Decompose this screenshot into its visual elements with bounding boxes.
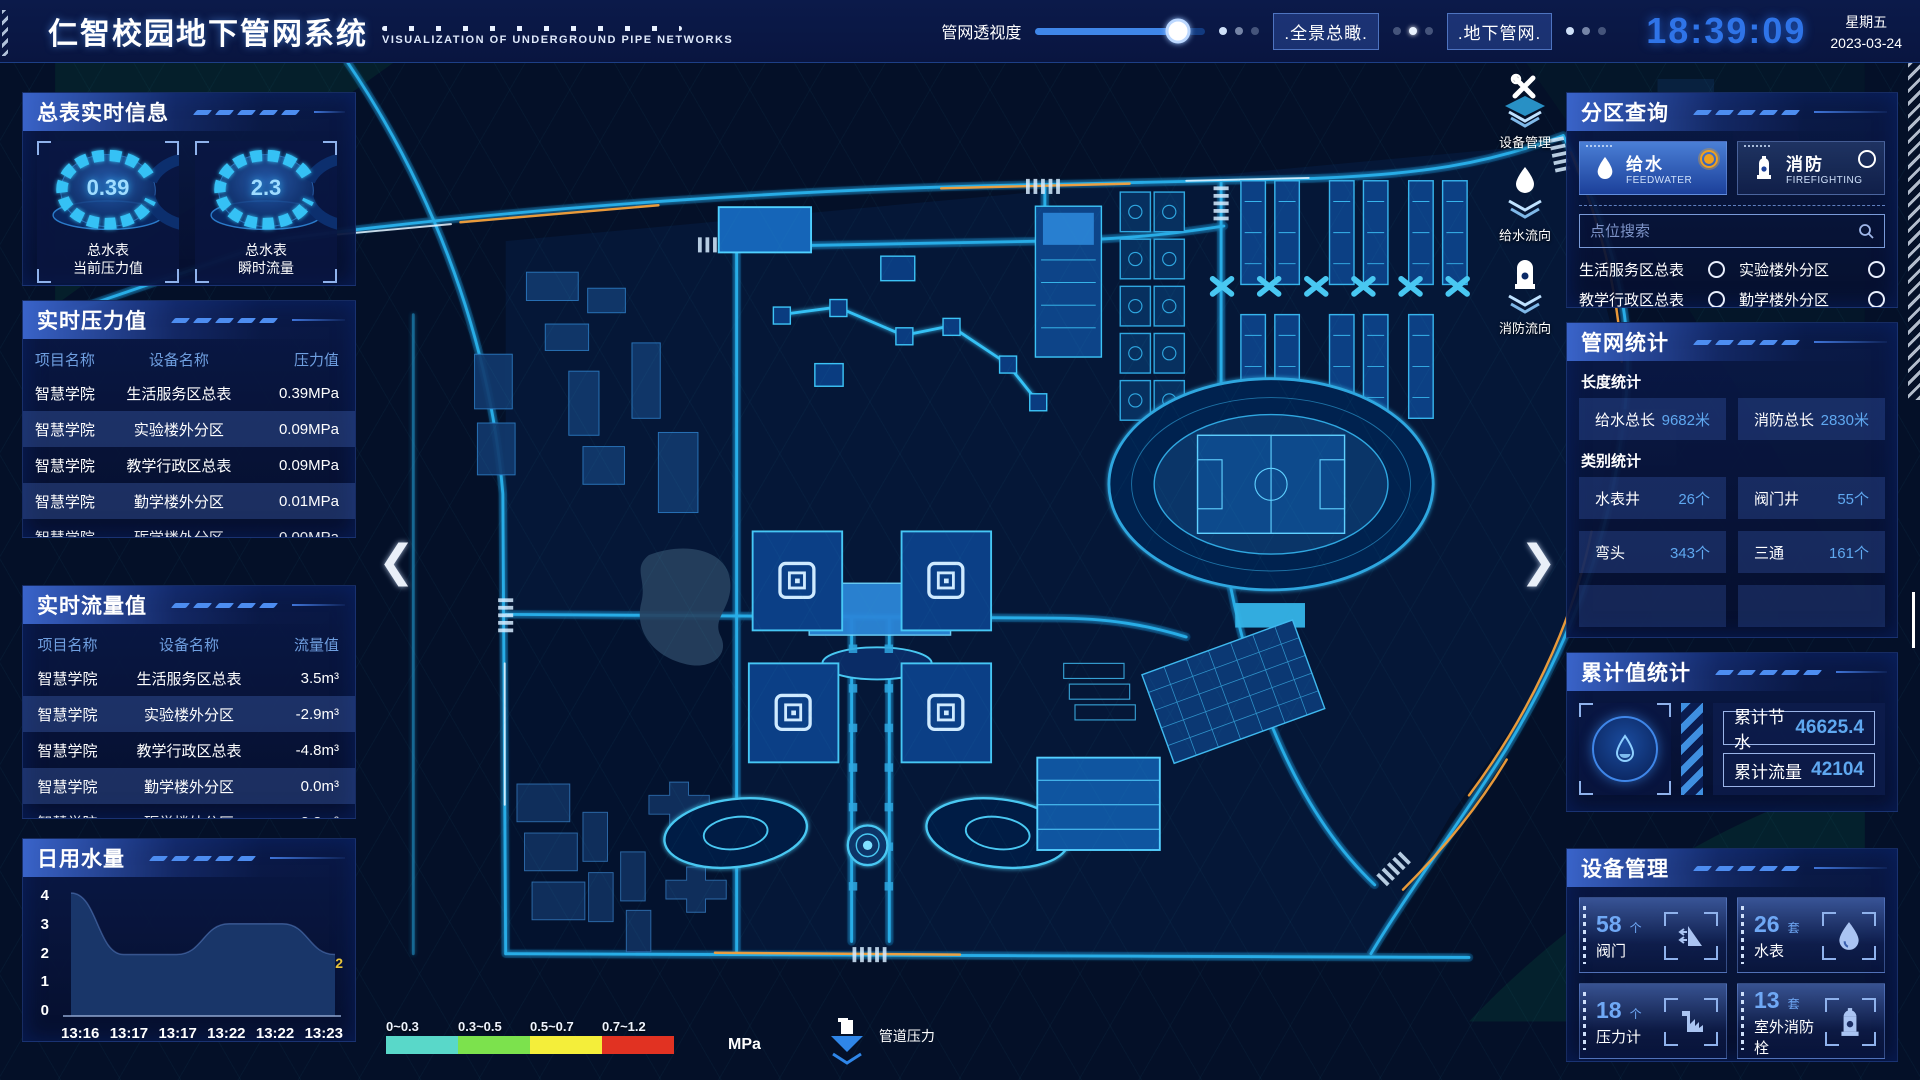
- stat-meter-wells: 水表井26个: [1579, 477, 1726, 519]
- x-tick: 13:17: [110, 1025, 148, 1042]
- tool-label: 消防流向: [1499, 318, 1551, 337]
- x-tick: 13:23: [305, 1025, 343, 1042]
- title-dots-decoration: [382, 26, 682, 31]
- fire-hydrant-icon: [1837, 1007, 1863, 1037]
- firefighting-label: 消防: [1786, 150, 1863, 175]
- header-edge-decoration: [2, 10, 8, 56]
- panel-title: 设备管理: [1567, 853, 1669, 883]
- y-tick: 0: [33, 1002, 49, 1019]
- device-card-hydrants[interactable]: 13套 室外消防栓: [1737, 983, 1885, 1059]
- col-header: 项目名称: [23, 628, 112, 660]
- app-subtitle: VISUALIZATION OF UNDERGROUND PIPE NETWOR…: [382, 34, 733, 46]
- panel-daily-water: 日用水量 4 3 2 1 0 2 13:16 13:17 13:17 13:22…: [22, 838, 356, 1042]
- panel-title: 日用水量: [23, 843, 125, 873]
- table-row: 智慧学院生活服务区总表0.39MPa: [23, 375, 355, 411]
- col-header: 流量值: [266, 628, 355, 660]
- water-drop-icon: [1613, 734, 1637, 764]
- feedwater-label: 给水: [1626, 150, 1692, 175]
- panel-title: 管网统计: [1567, 327, 1669, 357]
- area-chart-svg: [45, 883, 345, 1023]
- underground-pipes-button[interactable]: .地下管网.: [1447, 13, 1552, 50]
- table-row: 智慧学院砺学楼外分区0.00MPa: [23, 519, 355, 538]
- x-tick: 13:22: [256, 1025, 294, 1042]
- gauge-label-line1: 总水表: [245, 242, 287, 258]
- map-tool-fire-flow[interactable]: 消防流向: [1496, 258, 1554, 337]
- dots-decoration: [1393, 27, 1433, 35]
- zone-item[interactable]: 勤学楼外分区: [1739, 284, 1885, 308]
- search-icon[interactable]: [1858, 223, 1874, 239]
- app-title: 仁智校园地下管网系统: [48, 9, 368, 53]
- panel-meter-realtime: 总表实时信息 0.39 总水表 当前压力值: [22, 92, 356, 286]
- x-tick: 13:16: [61, 1025, 99, 1042]
- table-row: 智慧学院砺学楼外分区2.3m³: [23, 804, 355, 819]
- total-flow: 累计流量42104: [1723, 753, 1875, 787]
- map-next-arrow[interactable]: ❯: [1520, 540, 1557, 584]
- panel-title: 总表实时信息: [23, 97, 169, 127]
- legend-range: 0~0.3: [386, 1019, 458, 1034]
- panel-realtime-flow: 实时流量值 项目名称 设备名称 流量值 智慧学院生活服务区总表3.5m³ 智慧学…: [22, 585, 356, 819]
- tool-label: 给水流向: [1499, 225, 1551, 244]
- radio-ring-icon[interactable]: [1868, 291, 1885, 308]
- panel-title: 实时流量值: [23, 590, 147, 620]
- device-card-valves[interactable]: 58个 阀门: [1579, 897, 1727, 973]
- feedwater-sublabel: FEEDWATER: [1626, 175, 1692, 186]
- slider-fill: [1035, 28, 1178, 35]
- gauge-label-line2: 当前压力值: [73, 260, 143, 276]
- date: 2023-03-24: [1830, 35, 1902, 51]
- legend-unit: MPa: [728, 1036, 761, 1054]
- col-header: 设备名称: [107, 343, 251, 375]
- col-header: 压力值: [251, 343, 355, 375]
- device-card-water-meters[interactable]: 26套 水表: [1737, 897, 1885, 973]
- search-input[interactable]: [1580, 223, 1858, 240]
- table-row: 智慧学院教学行政区总表0.09MPa: [23, 447, 355, 483]
- feedwater-radio[interactable]: [1700, 150, 1718, 168]
- feedwater-toggle[interactable]: 给水 FEEDWATER: [1579, 141, 1727, 195]
- fire-hydrant-icon: [1752, 155, 1776, 181]
- col-header: 项目名称: [23, 343, 107, 375]
- device-card-pressure-gauges[interactable]: 18个 压力计: [1579, 983, 1727, 1059]
- dots-decoration: [1566, 27, 1606, 35]
- table-row: 智慧学院教学行政区总表-4.8m³: [23, 732, 355, 768]
- legend-colorbar: [386, 1036, 674, 1054]
- zone-item[interactable]: 教学行政区总表: [1579, 284, 1725, 308]
- tools-icon: [1499, 72, 1551, 130]
- pipe-pressure-icon: [825, 1016, 869, 1066]
- table-row: 智慧学院实验楼外分区-2.9m³: [23, 696, 355, 732]
- stat-elbows: 弯头343个: [1579, 531, 1726, 573]
- stat-valve-wells: 阀门井55个: [1738, 477, 1885, 519]
- panel-realtime-pressure: 实时压力值 项目名称 设备名称 压力值 智慧学院生活服务区总表0.39MPa 智…: [22, 300, 356, 538]
- stripes-decoration: [1681, 703, 1703, 795]
- map-tool-stack: 设备管理 给水流向 消防流向: [1496, 72, 1554, 337]
- gauge-label-line2: 瞬时流量: [238, 260, 294, 276]
- gauge-pressure: 0.39 总水表 当前压力值: [37, 141, 179, 283]
- stat-feed-length: 给水总长9682米: [1579, 398, 1726, 440]
- pipe-opacity-label: 管网透视度: [941, 19, 1021, 43]
- chart-end-value: 2: [335, 955, 343, 971]
- water-flow-icon: [1499, 165, 1551, 223]
- radio-ring-icon[interactable]: [1868, 261, 1885, 278]
- daily-water-chart: 4 3 2 1 0 2 13:16 13:17 13:17 13:22 13:2…: [23, 877, 355, 1042]
- gauge-value: 0.39: [37, 175, 179, 201]
- gauge-value: 2.3: [195, 175, 337, 201]
- map-tool-device-management[interactable]: 设备管理: [1496, 72, 1554, 151]
- table-row: 智慧学院实验楼外分区0.09MPa: [23, 411, 355, 447]
- zone-item[interactable]: 实验楼外分区: [1739, 254, 1885, 284]
- firefighting-toggle[interactable]: 消防 FIREFIGHTING: [1737, 141, 1885, 195]
- radio-ring-icon[interactable]: [1708, 261, 1725, 278]
- category-stats-label: 类别统计: [1567, 440, 1897, 477]
- map-tool-feedwater-flow[interactable]: 给水流向: [1496, 165, 1554, 244]
- pressure-legend: 0~0.3 0.3~0.5 0.5~0.7 0.7~1.2 MPa 管道压力: [386, 1016, 1006, 1054]
- pipe-opacity-slider[interactable]: [1035, 28, 1205, 35]
- weekday: 星期五: [1845, 12, 1887, 32]
- right-scrollbar[interactable]: [1912, 592, 1915, 648]
- col-header: 设备名称: [112, 628, 266, 660]
- y-tick: 2: [33, 945, 49, 962]
- gauge-flow: 2.3 总水表 瞬时流量: [195, 141, 337, 283]
- panel-cumulative-totals: 累计值统计 累计节水46625.4 累计流量42104: [1566, 652, 1898, 812]
- firefighting-sublabel: FIREFIGHTING: [1786, 175, 1863, 186]
- water-drop-icon: [1836, 921, 1862, 951]
- hydrant-flow-icon: [1499, 258, 1551, 316]
- point-search[interactable]: [1579, 214, 1885, 248]
- x-tick: 13:22: [207, 1025, 245, 1042]
- legend-range: 0.3~0.5: [458, 1019, 530, 1034]
- slider-thumb[interactable]: [1166, 19, 1191, 44]
- stat-tees: 三通161个: [1738, 531, 1885, 573]
- legend-range: 0.5~0.7: [530, 1019, 602, 1034]
- stat-clipped: [1579, 585, 1726, 627]
- top-header: 仁智校园地下管网系统 VISUALIZATION OF UNDERGROUND …: [0, 0, 1920, 63]
- panel-title: 累计值统计: [1567, 657, 1691, 687]
- dots-decoration: [1219, 27, 1259, 35]
- table-row: 智慧学院生活服务区总表3.5m³: [23, 660, 355, 696]
- divider: [1579, 205, 1885, 206]
- map-prev-arrow[interactable]: ❮: [378, 540, 415, 584]
- pipe-pressure-label: 管道压力: [879, 1026, 935, 1046]
- zone-list: 生活服务区总表 实验楼外分区 教学行政区总表 勤学楼外分区 砺学楼外分区 宿舍区…: [1567, 252, 1897, 308]
- panel-title: 实时压力值: [23, 305, 147, 335]
- total-water-saved: 累计节水46625.4: [1723, 711, 1875, 745]
- water-drop-icon: [1594, 155, 1616, 181]
- panel-title: 分区查询: [1567, 97, 1669, 127]
- panel-device-management: 设备管理 58个 阀门 26套 水表 18个: [1566, 848, 1898, 1062]
- panel-zone-query: 分区查询 给水 FEEDWATER 消防 FIREFIGHTING: [1566, 92, 1898, 308]
- stat-clipped: [1738, 585, 1885, 627]
- y-tick: 1: [33, 973, 49, 990]
- pressure-table: 项目名称 设备名称 压力值 智慧学院生活服务区总表0.39MPa 智慧学院实验楼…: [23, 343, 355, 538]
- water-emblem: [1579, 703, 1671, 795]
- zone-item[interactable]: 生活服务区总表: [1579, 254, 1725, 284]
- legend-range: 0.7~1.2: [602, 1019, 674, 1034]
- y-tick: 4: [33, 887, 49, 904]
- pressure-gauge-icon: [1676, 1008, 1706, 1036]
- tool-label: 设备管理: [1499, 132, 1551, 151]
- y-tick: 3: [33, 916, 49, 933]
- panel-network-stats: 管网统计 长度统计 给水总长9682米 消防总长2830米 类别统计 水表井26…: [1566, 322, 1898, 638]
- stat-fire-length: 消防总长2830米: [1738, 398, 1885, 440]
- x-tick: 13:17: [158, 1025, 196, 1042]
- dashboard: 仁智校园地下管网系统 VISUALIZATION OF UNDERGROUND …: [0, 0, 1920, 1080]
- firefighting-radio[interactable]: [1858, 150, 1876, 168]
- clock: 18:39:09: [1646, 10, 1806, 52]
- panorama-button[interactable]: .全景总瞰.: [1273, 13, 1378, 50]
- flow-table: 项目名称 设备名称 流量值 智慧学院生活服务区总表3.5m³ 智慧学院实验楼外分…: [23, 628, 355, 819]
- gauge-label-line1: 总水表: [87, 242, 129, 258]
- table-row: 智慧学院勤学楼外分区0.0m³: [23, 768, 355, 804]
- table-row: 智慧学院勤学楼外分区0.01MPa: [23, 483, 355, 519]
- radio-ring-icon[interactable]: [1708, 291, 1725, 308]
- valve-icon: [1676, 922, 1706, 950]
- length-stats-label: 长度统计: [1567, 361, 1897, 398]
